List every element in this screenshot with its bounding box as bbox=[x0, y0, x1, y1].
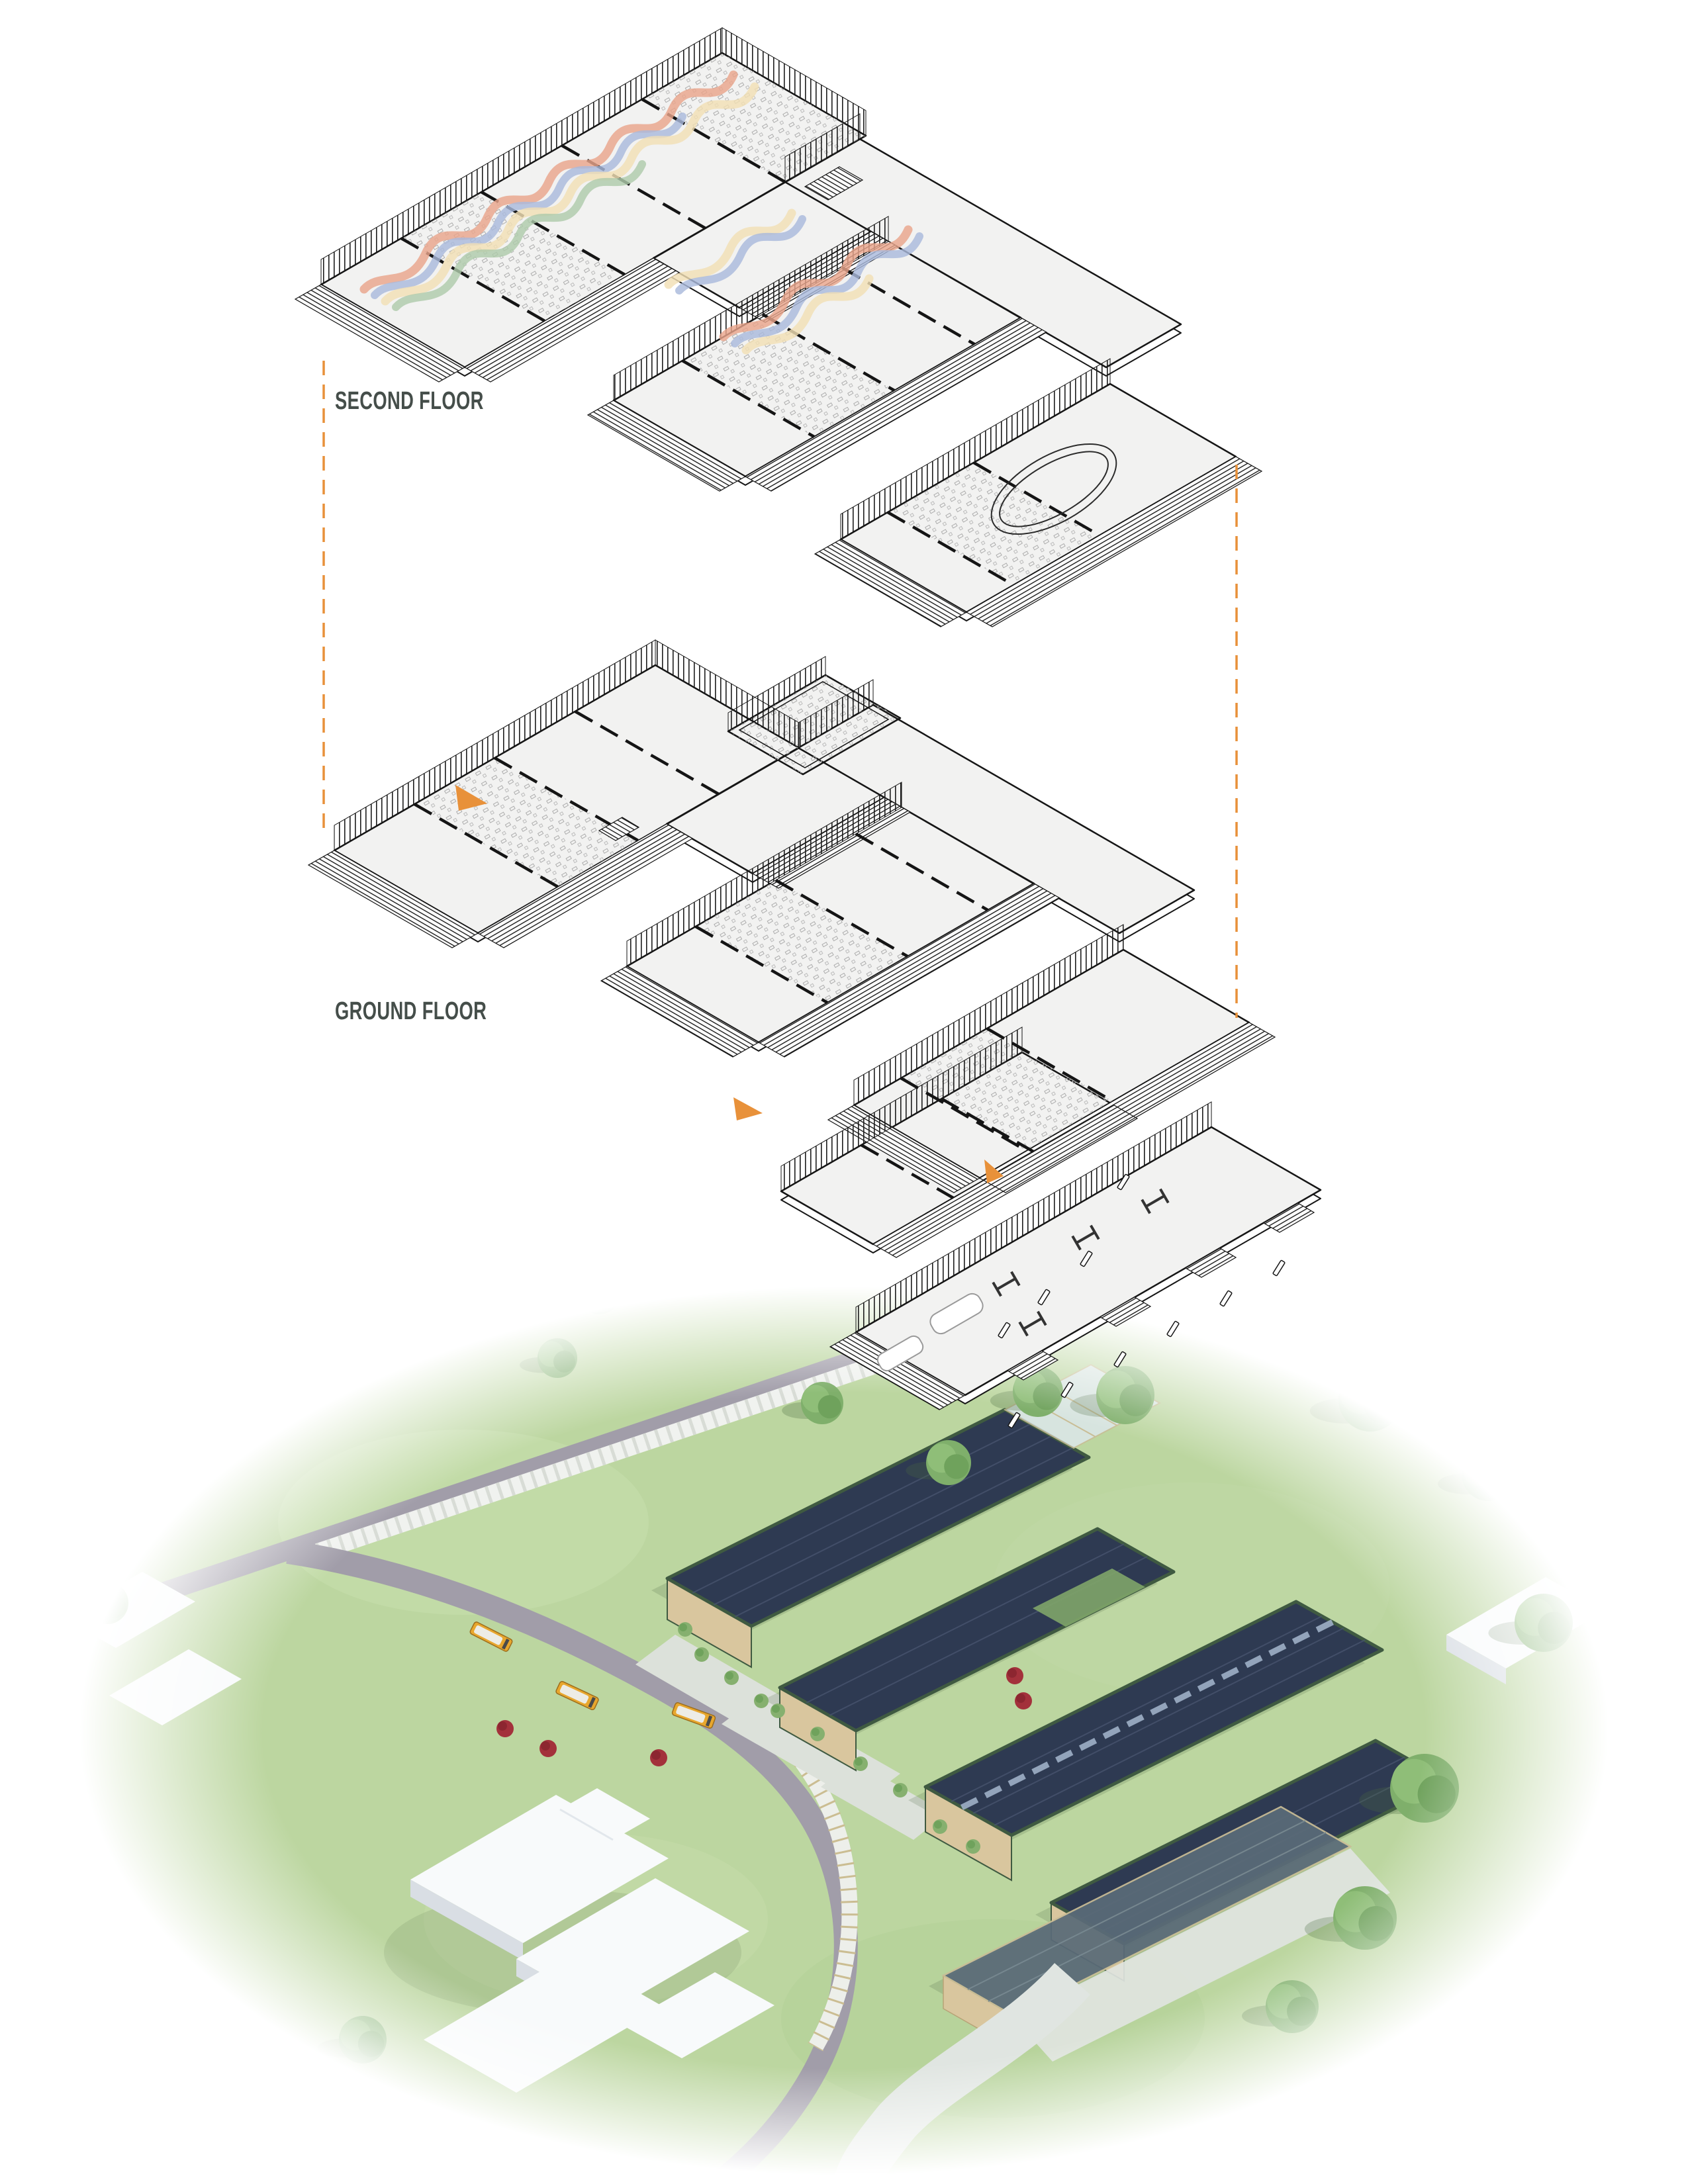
shrub bbox=[966, 1839, 980, 1854]
site-plan bbox=[63, 1269, 1609, 2184]
shrub bbox=[893, 1783, 908, 1797]
tree bbox=[250, 2083, 311, 2126]
red-shrub bbox=[496, 1720, 514, 1737]
red-shrub bbox=[1006, 1667, 1023, 1684]
shrub bbox=[724, 1670, 739, 1685]
shrub bbox=[754, 1694, 769, 1708]
shrub bbox=[933, 1819, 947, 1834]
shrub bbox=[694, 1647, 709, 1662]
tree bbox=[122, 1463, 191, 1511]
second-floor-label: SECOND FLOOR bbox=[335, 387, 484, 415]
post bbox=[1220, 1291, 1233, 1306]
red-shrub bbox=[650, 1749, 667, 1766]
red-shrub bbox=[1015, 1692, 1032, 1709]
entrance-arrow-icon bbox=[733, 1097, 763, 1120]
red-shrub bbox=[539, 1740, 557, 1757]
diagram-canvas: SECOND FLOOR GROUND FLOOR bbox=[0, 0, 1688, 2184]
post bbox=[1273, 1260, 1286, 1276]
tree bbox=[556, 1269, 622, 1314]
tree bbox=[389, 1293, 457, 1341]
shrub bbox=[810, 1727, 825, 1741]
second-floor-axonometric bbox=[295, 28, 1262, 627]
tree bbox=[211, 1347, 288, 1400]
ground-floor-label: GROUND FLOOR bbox=[335, 997, 487, 1025]
shrub bbox=[771, 1704, 785, 1718]
shrub bbox=[678, 1622, 692, 1637]
shrub bbox=[853, 1756, 868, 1771]
